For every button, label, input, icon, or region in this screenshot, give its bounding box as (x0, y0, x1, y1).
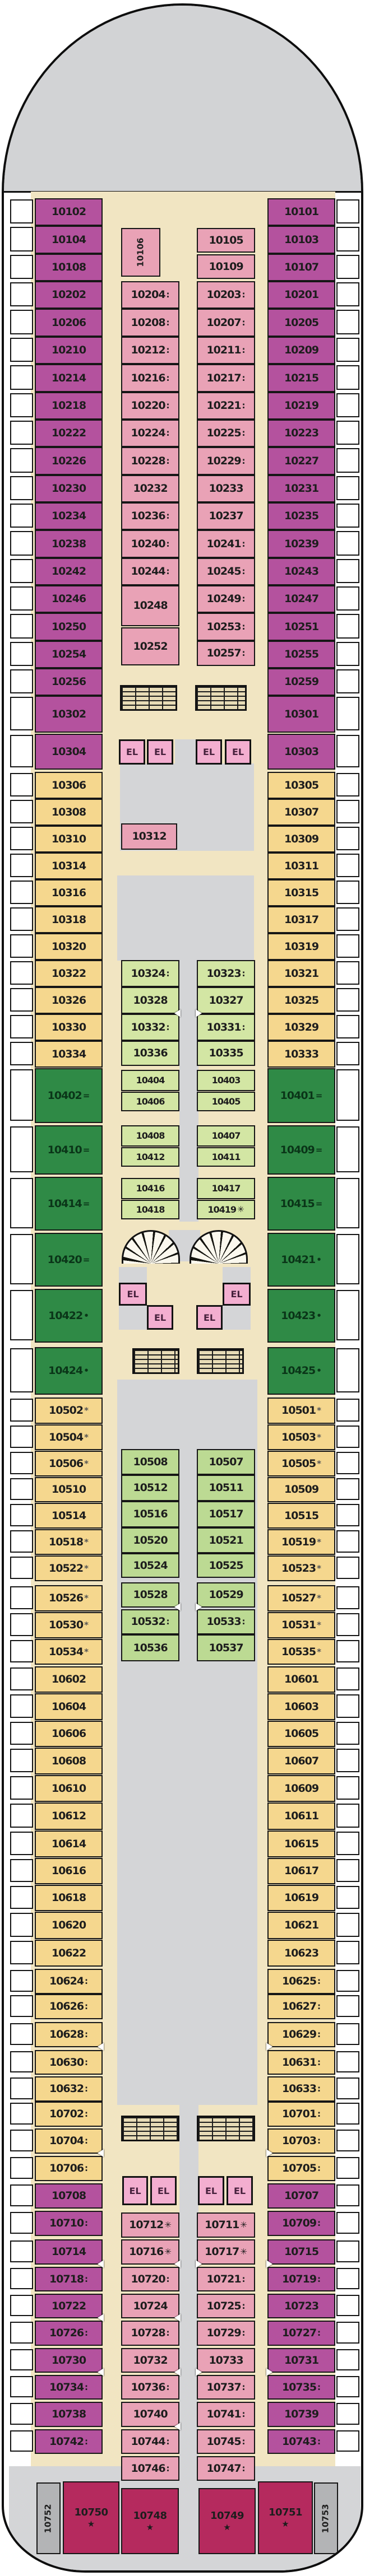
balcony-10102 (10, 199, 33, 223)
berth-symbol: • (316, 1256, 322, 1264)
berth-symbol: : (242, 319, 246, 327)
balcony-10739 (336, 2403, 359, 2425)
balcony-10506 (10, 1452, 33, 1474)
berth-symbol: : (317, 2275, 321, 2284)
elevator-box: EL (198, 2176, 224, 2205)
berth-symbol: : (242, 623, 246, 631)
balcony-10706 (10, 2157, 33, 2179)
balcony-10414 (10, 1178, 33, 1228)
cabin-10325: 10325 (267, 987, 335, 1014)
cabin-10746: 10746: (121, 2456, 179, 2481)
cabin-10246: 10246 (35, 585, 103, 613)
cabin-10630: 10630: (35, 2050, 103, 2075)
cabin-number: 10528 (133, 1590, 167, 1600)
balcony-10514 (10, 1504, 33, 1526)
cabin-10414: 10414= (35, 1177, 103, 1231)
connecting-door-arrow-icon (98, 2149, 104, 2157)
balcony-10526 (10, 1586, 33, 1609)
berth-symbol: : (85, 1977, 88, 1986)
cabin-10249: 10249: (197, 585, 255, 613)
cabin-number: 10751 (269, 2508, 302, 2518)
star-icon: ★ (146, 2523, 154, 2532)
cabin-number: 10310 (52, 834, 86, 845)
balcony-10202 (10, 282, 33, 306)
cabin-10220: 10220: (121, 392, 179, 420)
cabin-10215: 10215 (267, 364, 335, 392)
berth-symbol: : (317, 2329, 321, 2337)
cabin-number: 10607 (284, 1756, 318, 1767)
berth-symbol: : (167, 402, 170, 410)
cabin-number: 10109 (209, 262, 243, 272)
cabin-number: 10732 (133, 2355, 167, 2366)
cabin-number: 10420 (48, 1255, 82, 1265)
berth-symbol: : (167, 540, 170, 548)
berth-symbol: : (317, 1977, 321, 1986)
cabin-number: 10331 (206, 1022, 241, 1033)
cabin-number: 10404 (136, 1076, 165, 1085)
cabin-10628: 10628: (35, 2022, 103, 2047)
cabin-number: 10422 (48, 1311, 82, 1321)
cabin-number: 10306 (52, 780, 86, 791)
berth-symbol: : (317, 2164, 321, 2173)
balcony-10611 (336, 1804, 359, 1828)
cabin-number: 10325 (284, 995, 318, 1006)
berth-symbol: * (84, 1564, 89, 1573)
balcony-10633 (336, 2077, 359, 2099)
balcony-10714 (10, 2240, 33, 2262)
balcony-10519 (336, 1530, 359, 1553)
balcony-10510 (10, 1478, 33, 1500)
elevator-box: EL (227, 2176, 253, 2205)
balcony-10210 (10, 338, 33, 362)
cabin-10230: 10230 (35, 475, 103, 502)
cabin-number: 10210 (52, 345, 86, 356)
cabin-number: 10414 (48, 1199, 82, 1209)
connecting-door-arrow-icon (98, 2260, 104, 2268)
berth-symbol: * (84, 1594, 89, 1603)
berth-symbol: : (242, 2329, 246, 2337)
cabin-number: 10419 (207, 1205, 236, 1214)
balcony-10723 (336, 2295, 359, 2316)
cabin-10240: 10240: (121, 530, 179, 558)
cabin-number: 10421 (281, 1255, 315, 1265)
cabin-10408: 10408 (121, 1125, 179, 1147)
balcony-10502 (10, 1399, 33, 1422)
berth-symbol: ✳ (240, 2221, 247, 2229)
cabin-10405: 10405 (197, 1092, 255, 1111)
elevator-box: EL (147, 1305, 173, 1330)
stairs-block (120, 685, 177, 711)
balcony-10715 (336, 2240, 359, 2262)
cabin-10504: 10504* (35, 1424, 103, 1450)
cabin-10738: 10738 (35, 2402, 103, 2427)
balcony-10326 (10, 988, 33, 1012)
cabin-10201: 10201 (267, 281, 335, 309)
cabin-number: 10605 (284, 1729, 318, 1739)
cabin-number: 10233 (209, 483, 243, 494)
cabin-number: 10336 (133, 1048, 167, 1059)
cabin-number: 10311 (284, 861, 318, 872)
cabin-number: 10524 (133, 1560, 167, 1571)
cabin-10623: 10623 (267, 1940, 335, 1967)
cabin-10614: 10614 (35, 1830, 103, 1857)
cabin-number: 10705 (282, 2163, 316, 2174)
balcony-10603 (336, 1694, 359, 1718)
cabin-10234: 10234 (35, 502, 103, 530)
cabin-number: 10731 (284, 2355, 318, 2366)
cabin-10711: 10711✳ (197, 2212, 255, 2238)
cabin-10610: 10610 (35, 1775, 103, 1802)
cabin-number: 10108 (52, 262, 86, 273)
cabin-number: 10244 (131, 566, 165, 577)
cabin-number: 10249 (206, 594, 241, 604)
berth-symbol: : (242, 374, 246, 383)
cabin-number: 10221 (206, 400, 241, 411)
balcony-10250 (10, 614, 33, 639)
balcony-10610 (10, 1776, 33, 1800)
cabin-number: 10401 (280, 1091, 315, 1101)
cabin-10323: 10323: (197, 960, 255, 987)
berth-symbol: : (167, 2438, 170, 2446)
connecting-door-arrow-icon (174, 2260, 181, 2268)
cabin-10534: 10534* (35, 1639, 103, 1665)
balcony-10423 (336, 1290, 359, 1340)
cabin-10532: 10532: (121, 1609, 179, 1634)
balcony-10708 (10, 2184, 33, 2206)
balcony-10234 (10, 504, 33, 528)
cabin-10223: 10223 (267, 420, 335, 447)
cabin-10332: 10332: (121, 1014, 179, 1041)
cabin-10531: 10531* (267, 1612, 335, 1638)
cabin-10401: 10401= (267, 1068, 335, 1123)
cabin-10505: 10505* (267, 1451, 335, 1476)
cabin-number: 10753 (322, 2504, 330, 2533)
cabin-10204: 10204: (121, 281, 179, 309)
balcony-10420 (10, 1234, 33, 1284)
cabin-10719: 10719: (267, 2267, 335, 2291)
cabin-10515: 10515 (267, 1503, 335, 1529)
cabin-10330: 10330 (35, 1014, 103, 1041)
cabin-10724: 10724 (121, 2294, 179, 2318)
cabin-10730: 10730 (35, 2348, 103, 2373)
cabin-10247: 10247 (267, 585, 335, 613)
cabin-10530: 10530* (35, 1612, 103, 1638)
cabin-10335: 10335 (197, 1041, 255, 1066)
balcony-10255 (336, 642, 359, 666)
balcony-10722 (10, 2295, 33, 2316)
cabin-10752: 10752 (36, 2482, 61, 2554)
cabin-10707: 10707 (267, 2183, 335, 2209)
cabin-number: 10721 (206, 2274, 241, 2285)
balcony-10424 (10, 1348, 33, 1392)
cabin-number: 10326 (52, 995, 86, 1006)
balcony-10503 (336, 1426, 359, 1448)
cabin-10501: 10501* (267, 1398, 335, 1424)
berth-symbol: : (167, 2275, 170, 2284)
cabin-number: 10504 (49, 1432, 83, 1443)
cabin-10611: 10611 (267, 1802, 335, 1830)
cabin-number: 10324 (131, 968, 165, 979)
berth-symbol: * (84, 1648, 89, 1656)
cabin-number: 10626 (49, 2001, 84, 2012)
cabin-number: 10312 (132, 831, 166, 842)
cabin-number: 10627 (282, 2001, 316, 2012)
cabin-10328: 10328 (121, 987, 179, 1014)
cabin-number: 10509 (284, 1484, 318, 1495)
balcony-10401 (336, 1069, 359, 1121)
balcony-10231 (336, 476, 359, 500)
cabin-number: 10515 (284, 1511, 318, 1521)
cabin-number: 10235 (284, 511, 318, 521)
berth-symbol: • (316, 1312, 322, 1320)
cabin-10535: 10535* (267, 1639, 335, 1665)
cabin-number: 10714 (52, 2247, 86, 2257)
interior-gray-area (223, 1267, 251, 1283)
balcony-10303 (336, 735, 359, 767)
connecting-door-arrow-icon (174, 2314, 181, 2322)
cabin-10520: 10520 (121, 1527, 179, 1553)
balcony-10705 (336, 2157, 359, 2179)
cabin-10622: 10622 (35, 1940, 103, 1967)
cabin-number: 10612 (52, 1811, 86, 1822)
cabin-number: 10519 (281, 1537, 316, 1548)
cabin-10725: 10725: (197, 2294, 255, 2318)
cabin-10226: 10226 (35, 447, 103, 475)
balcony-10314 (10, 854, 33, 877)
balcony-10242 (10, 559, 33, 583)
berth-symbol: = (316, 1146, 323, 1154)
stairs-block (121, 2116, 179, 2141)
cabin-10745: 10745: (197, 2429, 255, 2454)
cabin-number: 10245 (206, 566, 241, 577)
cabin-10333: 10333 (267, 1041, 335, 1068)
balcony-10530 (10, 1613, 33, 1636)
cabin-10232: 10232 (121, 475, 179, 502)
balcony-10107 (336, 255, 359, 279)
balcony-10308 (10, 800, 33, 823)
cabin-10629: 10629: (267, 2022, 335, 2047)
cabin-number: 10425 (281, 1366, 315, 1376)
cabin-number: 10745 (206, 2437, 241, 2447)
cabin-10255: 10255 (267, 641, 335, 668)
cabin-10601: 10601 (267, 1666, 335, 1693)
berth-symbol: : (85, 2110, 88, 2118)
cabin-10244: 10244: (121, 558, 179, 585)
berth-symbol: * (84, 1406, 89, 1415)
elevator-box: EL (223, 1283, 251, 1306)
cabin-number: 10330 (52, 1022, 86, 1033)
cabin-10309: 10309 (267, 826, 335, 853)
cabin-10739: 10739 (267, 2402, 335, 2427)
berth-symbol: : (242, 2302, 246, 2311)
berth-symbol: : (85, 2030, 88, 2039)
cabin-number: 10305 (284, 780, 318, 791)
cabin-10254: 10254 (35, 641, 103, 668)
deck-plan-page: { "plan_name": "cruise-ship-deck-plan-de… (0, 0, 365, 2576)
balcony-10614 (10, 1832, 33, 1855)
balcony-10625 (336, 1970, 359, 1992)
cabin-number: 10319 (284, 942, 318, 952)
berth-symbol: : (85, 2164, 88, 2173)
balcony-10205 (336, 310, 359, 334)
interior-gray-area (179, 2103, 198, 2481)
cabin-number: 10521 (209, 1535, 243, 1546)
cabin-number: 10630 (49, 2057, 84, 2068)
balcony-10246 (10, 586, 33, 611)
berth-symbol: : (167, 457, 170, 465)
balcony-10101 (336, 199, 359, 223)
cabin-10402: 10402= (35, 1068, 103, 1123)
balcony-10254 (10, 642, 33, 666)
cabin-10311: 10311 (267, 853, 335, 879)
cabin-number: 10522 (49, 1563, 83, 1574)
berth-symbol: : (167, 2383, 170, 2392)
cabin-number: 10740 (133, 2409, 167, 2420)
cabin-number: 10410 (48, 1145, 82, 1156)
cabin-number: 10320 (52, 942, 86, 952)
cabin-10603: 10603 (267, 1693, 335, 1720)
star-icon: ★ (87, 2520, 95, 2528)
balcony-10201 (336, 282, 359, 306)
cabin-number: 10323 (206, 968, 241, 979)
cabin-number: 10744 (131, 2437, 165, 2447)
balcony-10302 (10, 697, 33, 730)
cabin-number: 10726 (49, 2328, 84, 2339)
berth-symbol: : (317, 2002, 321, 2011)
cabin-10508: 10508 (121, 1449, 179, 1475)
cabin-10518: 10518* (35, 1529, 103, 1555)
balcony-10629 (336, 2023, 359, 2045)
cabin-10316: 10316 (35, 879, 103, 906)
berth-symbol: : (167, 319, 170, 327)
balcony-10227 (336, 448, 359, 473)
cabin-number: 10237 (209, 511, 243, 521)
cabin-10733: 10733 (197, 2348, 255, 2373)
cabin-number: 10236 (131, 511, 165, 521)
balcony-10315 (336, 881, 359, 904)
cabin-number: 10708 (52, 2191, 86, 2201)
balcony-10727 (336, 2322, 359, 2344)
cabin-number: 10242 (52, 566, 86, 577)
cabin-10519: 10519* (267, 1529, 335, 1555)
balcony-10621 (336, 1913, 359, 1937)
cabin-number: 10231 (284, 483, 318, 494)
berth-symbol: * (84, 1460, 89, 1468)
cabin-number: 10525 (209, 1560, 243, 1571)
berth-symbol: : (242, 402, 246, 410)
balcony-10215 (336, 365, 359, 390)
cabin-number: 10520 (133, 1535, 167, 1546)
cabin-10235: 10235 (267, 502, 335, 530)
cabin-10728: 10728: (121, 2321, 179, 2346)
balcony-10409 (336, 1126, 359, 1172)
berth-symbol: : (317, 2030, 321, 2039)
cabin-10537: 10537 (197, 1634, 255, 1661)
cabin-10721: 10721: (197, 2267, 255, 2291)
cabin-number: 10526 (49, 1593, 83, 1604)
cabin-10702: 10702: (35, 2102, 103, 2127)
cabin-number: 10742 (49, 2437, 84, 2447)
cabin-10205: 10205 (267, 309, 335, 337)
cabin-10734: 10734: (35, 2375, 103, 2400)
cabin-number: 10505 (281, 1459, 316, 1469)
cabin-10317: 10317 (267, 906, 335, 933)
berth-symbol: : (85, 2438, 88, 2446)
cabin-number: 10246 (52, 594, 86, 604)
berth-symbol: * (317, 1564, 321, 1573)
cabin-10307: 10307 (267, 799, 335, 826)
balcony-10325 (336, 988, 359, 1012)
cabin-10331: 10331: (197, 1014, 255, 1041)
berth-symbol: : (242, 2383, 246, 2392)
berth-symbol: : (167, 970, 170, 978)
cabin-10632: 10632: (35, 2076, 103, 2102)
cabin-10238: 10238 (35, 530, 103, 558)
berth-symbol: * (317, 1433, 321, 1442)
cabin-number: 10416 (136, 1184, 165, 1193)
berth-symbol: * (84, 1433, 89, 1442)
cabin-10310: 10310 (35, 826, 103, 853)
cabin-10423: 10423• (267, 1289, 335, 1343)
cabin-10327: 10327 (197, 987, 255, 1014)
balcony-10218 (10, 393, 33, 417)
balcony-10235 (336, 504, 359, 528)
cabin-number: 10254 (52, 649, 86, 660)
berth-symbol: • (84, 1367, 89, 1375)
cabin-10302: 10302 (35, 696, 103, 733)
cabin-number: 10719 (282, 2274, 316, 2285)
interior-gray-area (179, 959, 198, 1222)
cabin-number: 10205 (284, 318, 318, 328)
balcony-10719 (336, 2268, 359, 2289)
balcony-10504 (10, 1426, 33, 1448)
cabin-10315: 10315 (267, 879, 335, 906)
cabin-number: 10503 (281, 1432, 316, 1443)
berth-symbol: ✳ (237, 1205, 244, 1214)
cabin-10102: 10102 (35, 198, 103, 226)
berth-symbol: * (84, 1538, 89, 1546)
cabin-number: 10608 (52, 1756, 86, 1767)
balcony-10703 (336, 2130, 359, 2151)
cabin-10248: 10248 (121, 585, 179, 626)
cabin-10723: 10723 (267, 2294, 335, 2318)
berth-symbol: : (242, 567, 246, 576)
cabin-10722: 10722 (35, 2294, 103, 2318)
balcony-10619 (336, 1886, 359, 1909)
cabin-10753: 10753 (314, 2482, 338, 2554)
cabin-number: 10738 (52, 2409, 86, 2420)
cabin-number: 10701 (282, 2109, 316, 2120)
balcony-10518 (10, 1530, 33, 1553)
balcony-10738 (10, 2403, 33, 2425)
balcony-10319 (336, 934, 359, 958)
balcony-10317 (336, 907, 359, 931)
cabin-10227: 10227 (267, 447, 335, 475)
balcony-10534 (10, 1640, 33, 1662)
cabin-number: 10239 (284, 539, 318, 549)
cabin-number: 10226 (52, 456, 86, 467)
cabin-10257: 10257: (197, 641, 255, 666)
berth-symbol: : (167, 2329, 170, 2337)
cabin-10744: 10744: (121, 2429, 179, 2454)
cabin-number: 10514 (52, 1511, 86, 1521)
cabin-10727: 10727: (267, 2321, 335, 2346)
cabin-10412: 10412 (121, 1147, 179, 1167)
balcony-10742 (10, 2430, 33, 2452)
cabin-number: 10507 (209, 1457, 243, 1468)
balcony-10329 (336, 1015, 359, 1038)
cabin-10521: 10521 (197, 1527, 255, 1553)
